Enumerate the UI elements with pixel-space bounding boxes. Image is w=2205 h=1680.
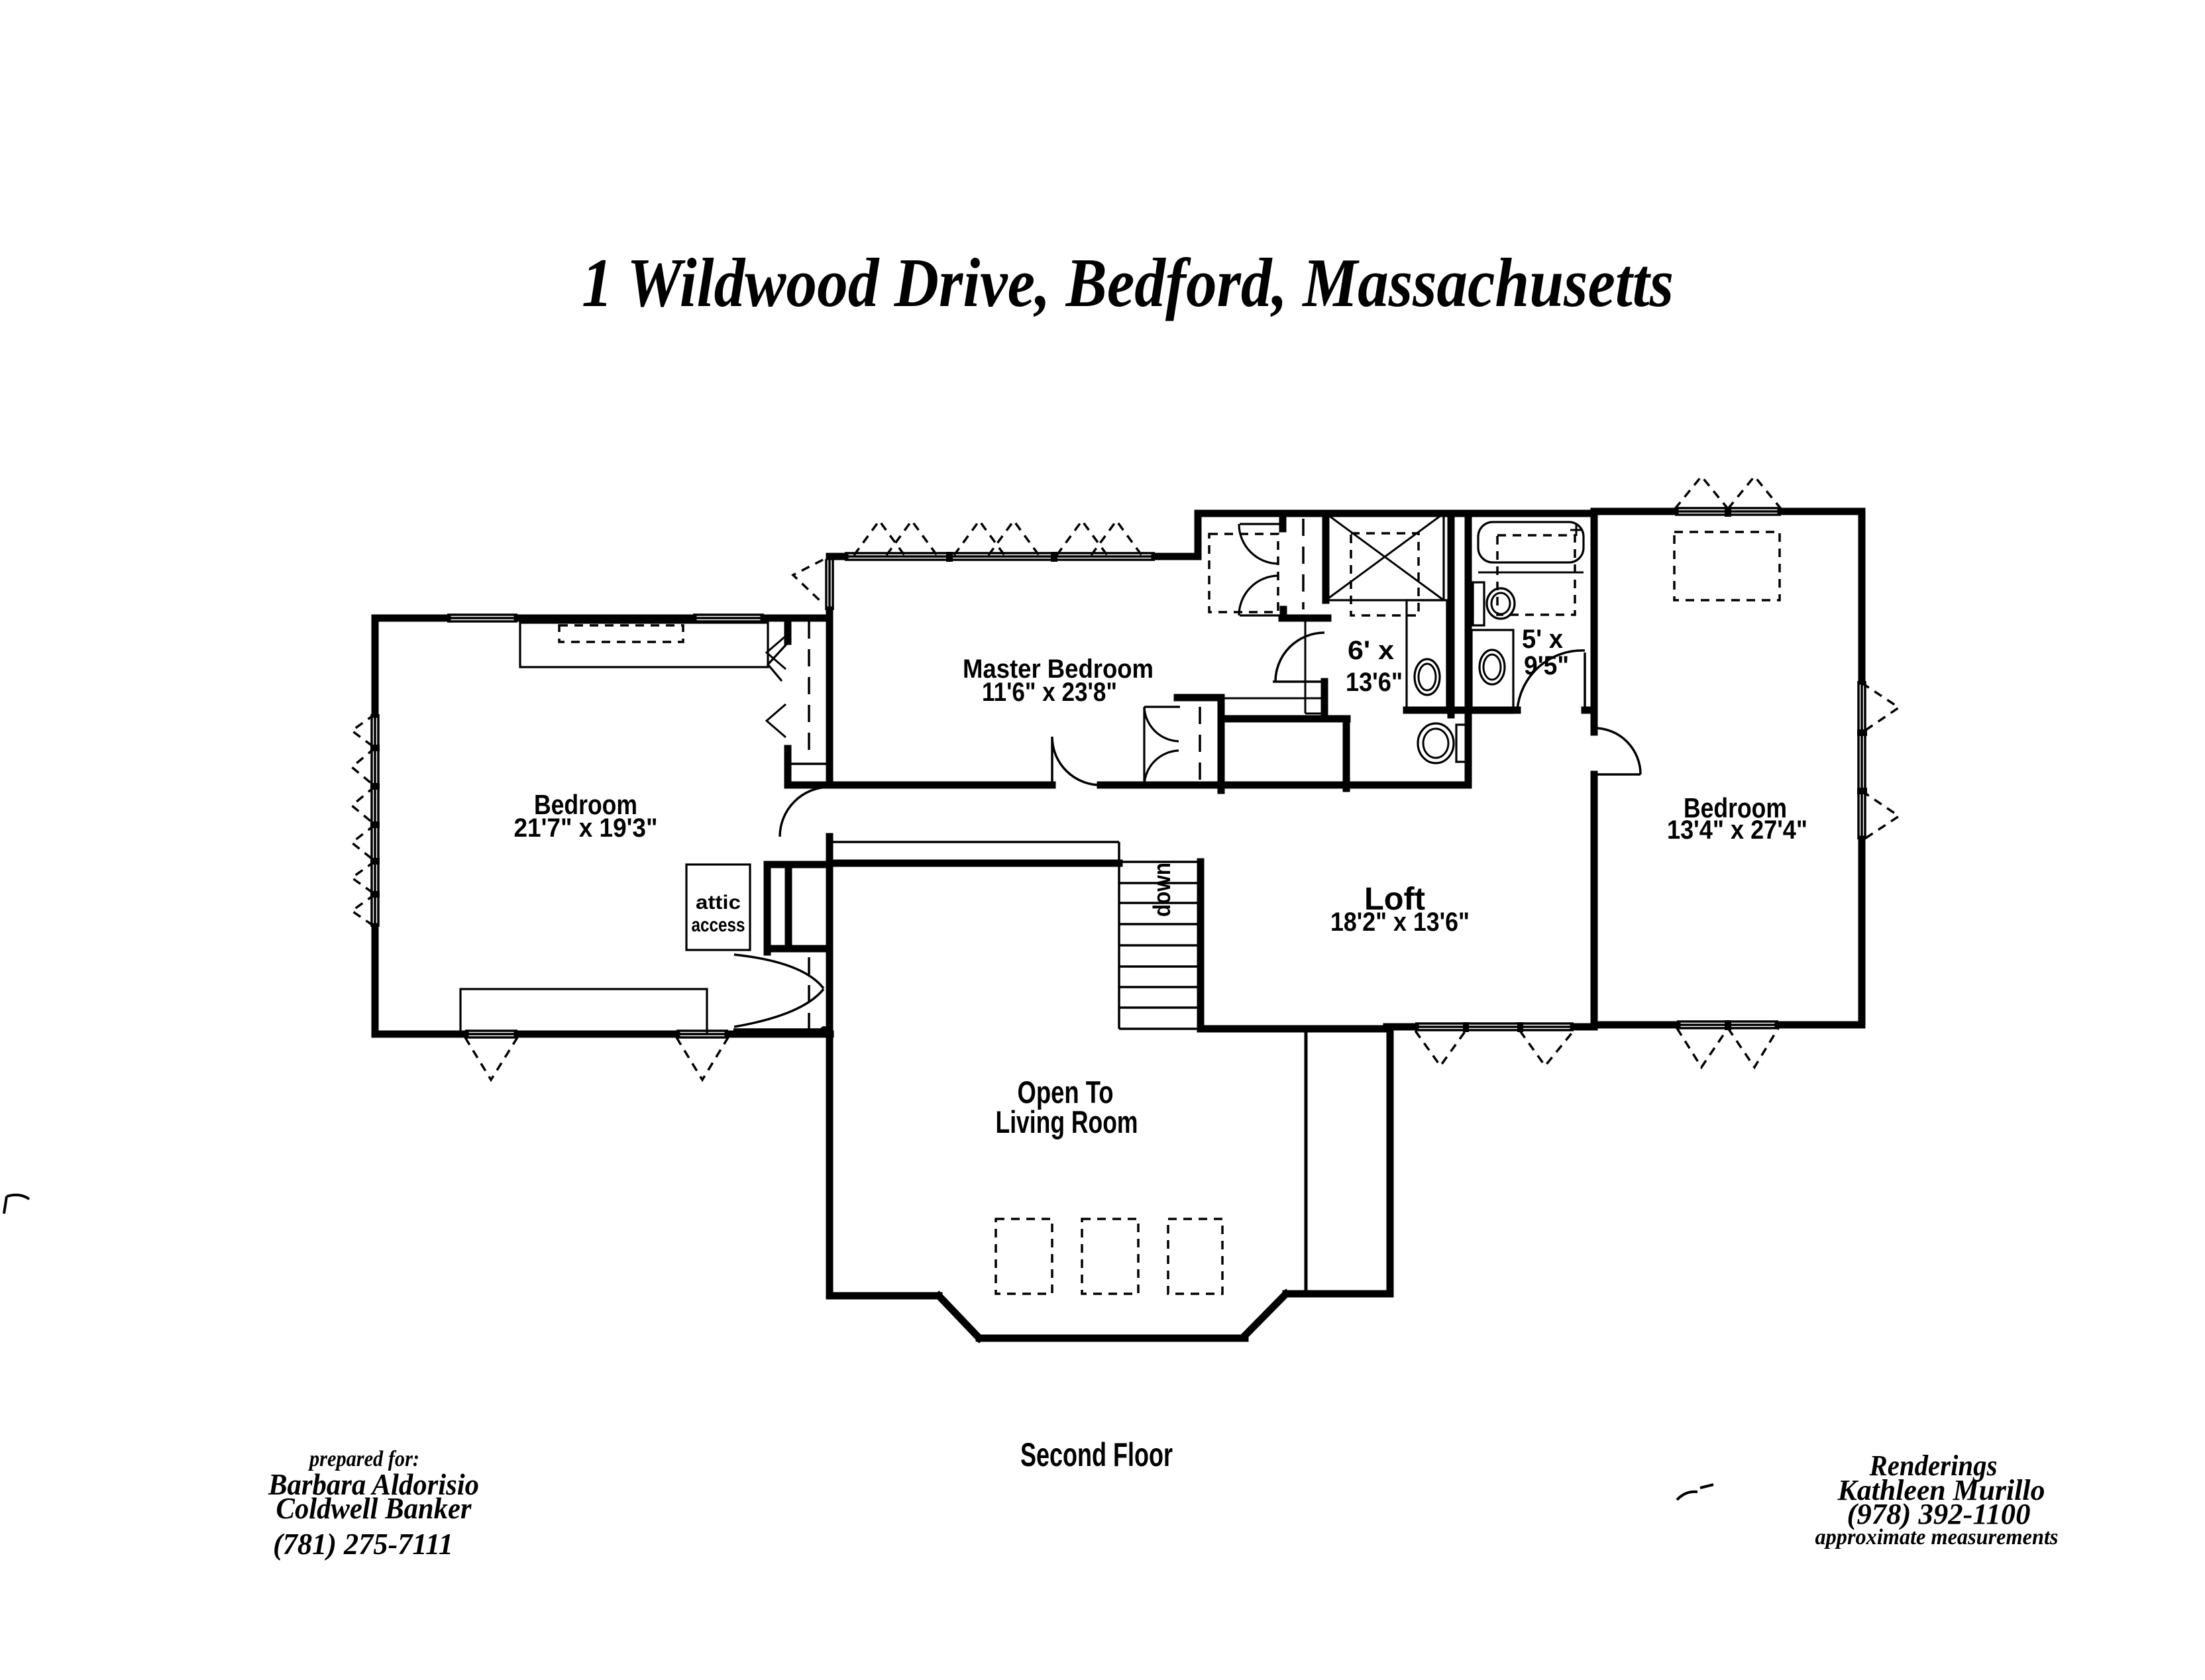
svg-text:21'7" x 19'3": 21'7" x 19'3": [514, 814, 658, 843]
svg-text:6' x: 6' x: [1348, 636, 1394, 665]
svg-text:approximate measurements: approximate measurements: [1815, 1525, 2059, 1549]
svg-text:Living Room: Living Room: [996, 1104, 1138, 1139]
svg-text:Second Floor: Second Floor: [1020, 1436, 1173, 1473]
svg-text:(781) 275-7111: (781) 275-7111: [273, 1527, 453, 1561]
svg-text:access: access: [692, 914, 745, 936]
svg-text:18'2" x 13'6": 18'2" x 13'6": [1330, 908, 1470, 937]
svg-text:Coldwell Banker: Coldwell Banker: [276, 1491, 472, 1525]
svg-text:9'5": 9'5": [1524, 651, 1569, 680]
svg-text:13'4" x 27'4": 13'4" x 27'4": [1667, 815, 1807, 845]
svg-text:11'6" x 23'8": 11'6" x 23'8": [982, 678, 1117, 707]
svg-text:5' x: 5' x: [1522, 625, 1563, 654]
svg-text:13'6": 13'6": [1346, 668, 1403, 697]
svg-text:attic: attic: [696, 892, 741, 914]
svg-text:down: down: [1148, 863, 1175, 917]
svg-text:1 Wildwood Drive, Bedford, Mas: 1 Wildwood Drive, Bedford, Massachusetts: [582, 244, 1674, 321]
